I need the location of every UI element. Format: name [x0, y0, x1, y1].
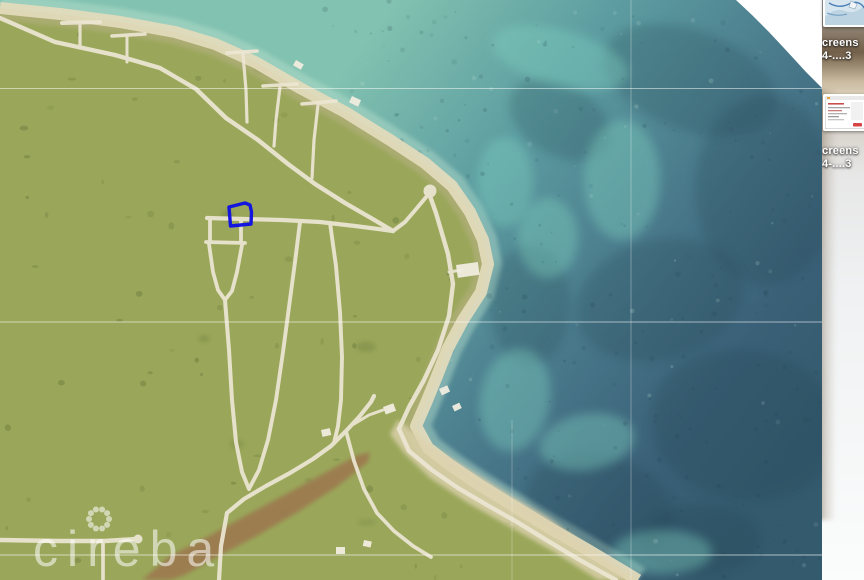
road-turnaround: [424, 185, 437, 198]
map-thumbnail-graphic: [825, 0, 864, 25]
road-t-c-bar: [227, 51, 257, 53]
file-label: creens 4-....3: [822, 37, 864, 63]
road-keyhole-bar: [206, 242, 245, 243]
file-label-line: creens: [822, 145, 864, 158]
cireba-flower-icon: [88, 510, 94, 516]
aerial-photo: cireba: [0, 0, 822, 580]
file-thumbnail-map[interactable]: [823, 0, 864, 27]
file-label: creens 4-....3: [822, 145, 864, 171]
file-label-line: 4-....3: [822, 50, 864, 63]
file-label-line: creens: [822, 37, 864, 50]
cireba-flower-icon: [93, 506, 99, 512]
cireba-flower-icon: [99, 506, 105, 512]
aerial-map-image: cireba: [0, 0, 822, 580]
file-label-line: 4-....3: [822, 158, 864, 171]
cireba-flower-icon: [104, 510, 110, 516]
file-thumbnail-window[interactable]: [823, 94, 864, 131]
desktop-file-screenshot-2[interactable]: creens 4-....3: [822, 94, 864, 171]
desktop-screen: cireba creens 4-....3: [0, 0, 864, 580]
road-t-b-bar: [112, 34, 145, 36]
desktop-file-screenshot-1[interactable]: creens 4-....3: [822, 0, 864, 63]
watermark-text: cireba: [33, 521, 223, 577]
window-thumbnail-graphic: [825, 96, 864, 129]
